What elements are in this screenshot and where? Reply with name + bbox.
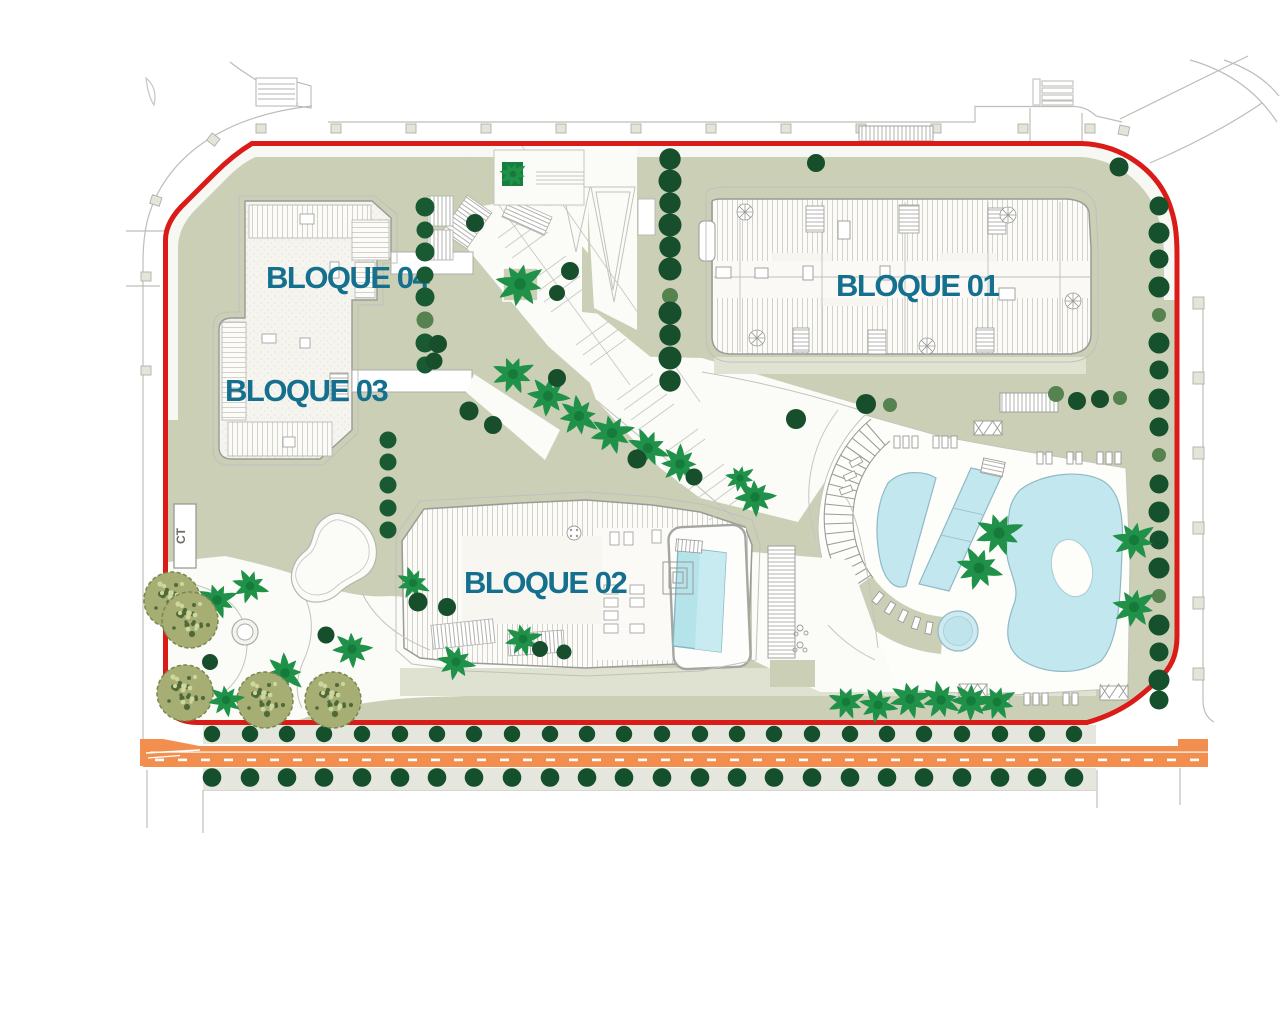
svg-text:BLOQUE 02: BLOQUE 02 [464,565,626,600]
svg-text:BLOQUE 01: BLOQUE 01 [836,268,999,303]
svg-text:BLOQUE 04: BLOQUE 04 [266,260,430,295]
svg-text:BLOQUE 03: BLOQUE 03 [225,373,388,408]
svg-text:CT: CT [174,527,188,544]
